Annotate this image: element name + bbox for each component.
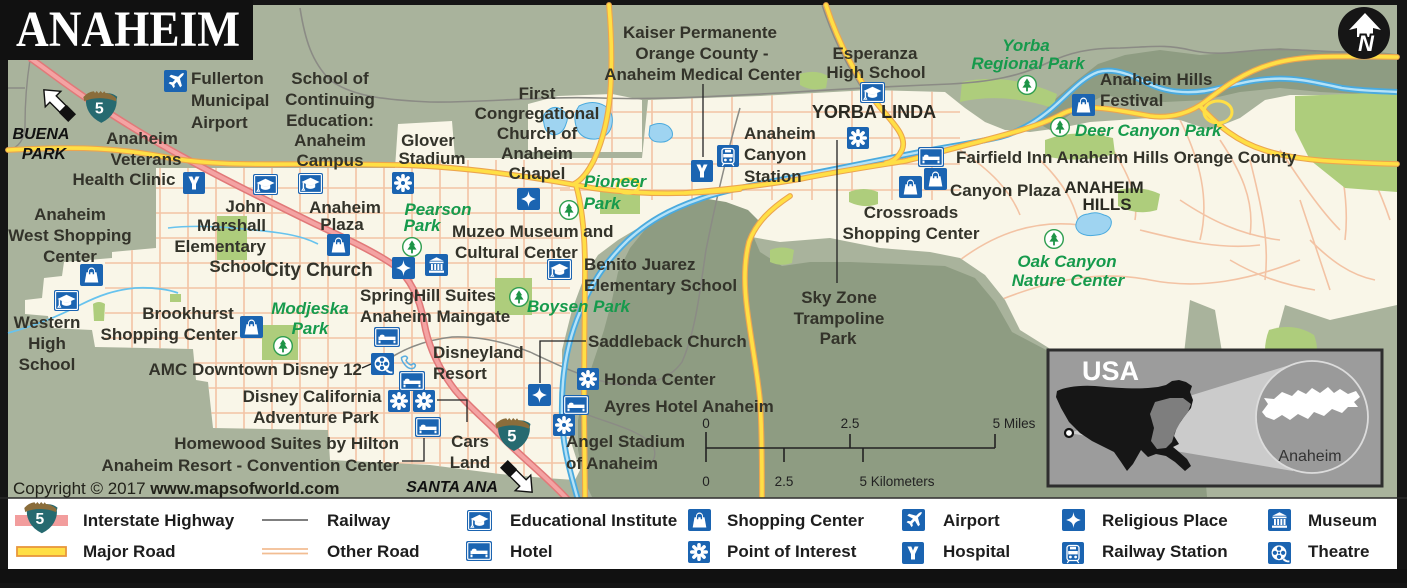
svg-text:Angel Stadium: Angel Stadium (566, 432, 685, 451)
svg-text:Glover: Glover (401, 131, 455, 150)
svg-text:Elementary School: Elementary School (584, 276, 737, 295)
svg-text:Yorba: Yorba (1002, 36, 1050, 55)
svg-text:Park: Park (584, 194, 622, 213)
svg-text:Airport: Airport (191, 113, 248, 132)
svg-text:Brookhurst: Brookhurst (142, 304, 234, 323)
svg-text:Land: Land (450, 453, 491, 472)
svg-text:PARK: PARK (22, 146, 68, 163)
svg-text:Boysen Park: Boysen Park (527, 297, 632, 316)
svg-text:Oak Canyon: Oak Canyon (1017, 252, 1116, 271)
svg-text:Fullerton: Fullerton (191, 69, 264, 88)
svg-text:2.5: 2.5 (775, 474, 794, 489)
svg-text:Orange County -: Orange County - (635, 44, 768, 63)
svg-text:Anaheim: Anaheim (744, 124, 816, 143)
svg-text:Interstate Highway: Interstate Highway (83, 511, 235, 530)
svg-text:Crossroads: Crossroads (864, 203, 958, 222)
svg-text:Pioneer: Pioneer (584, 172, 648, 191)
svg-text:Center: Center (43, 247, 97, 266)
svg-text:Railway Station: Railway Station (1102, 542, 1228, 561)
svg-text:2.5: 2.5 (841, 416, 860, 431)
svg-text:Other Road: Other Road (327, 542, 420, 561)
svg-text:West Shopping: West Shopping (8, 226, 131, 245)
svg-text:Theatre: Theatre (1308, 542, 1369, 561)
svg-text:Educational Institute: Educational Institute (510, 511, 677, 530)
svg-text:School of: School of (291, 69, 369, 88)
svg-text:Regional Park: Regional Park (971, 54, 1086, 73)
svg-text:Airport: Airport (943, 511, 1000, 530)
svg-text:Trampoline: Trampoline (794, 309, 885, 328)
svg-text:Western: Western (14, 313, 81, 332)
svg-text:City Church: City Church (265, 260, 373, 281)
svg-text:Anaheim: Anaheim (34, 205, 106, 224)
svg-text:5: 5 (507, 427, 516, 445)
svg-text:Homewood Suites by Hilton: Homewood Suites by Hilton (174, 434, 399, 453)
svg-text:Marshall: Marshall (197, 216, 266, 235)
svg-text:Disney California: Disney California (243, 387, 382, 406)
svg-text:Park: Park (404, 216, 442, 235)
svg-text:5: 5 (36, 511, 45, 528)
svg-text:Municipal: Municipal (191, 91, 269, 110)
svg-text:Plaza: Plaza (320, 215, 364, 234)
svg-text:BUENA: BUENA (13, 126, 70, 143)
svg-text:Anaheim Maingate: Anaheim Maingate (360, 307, 510, 326)
svg-text:Station: Station (744, 167, 802, 186)
svg-text:Chapel: Chapel (509, 164, 566, 183)
svg-text:Veterans: Veterans (111, 150, 182, 169)
svg-text:Anaheim: Anaheim (1278, 448, 1341, 465)
svg-text:School: School (209, 257, 266, 276)
svg-text:SANTA ANA: SANTA ANA (406, 479, 498, 496)
svg-text:5 Miles: 5 Miles (993, 416, 1036, 431)
svg-text:Continuing: Continuing (285, 90, 375, 109)
svg-text:Copyright © 2017 www.mapsofwor: Copyright © 2017 www.mapsofworld.com (13, 479, 340, 498)
svg-text:Hotel: Hotel (510, 542, 553, 561)
svg-text:Cars: Cars (451, 432, 489, 451)
svg-text:Museum: Museum (1308, 511, 1377, 530)
svg-text:First: First (519, 84, 556, 103)
svg-text:Shopping Center: Shopping Center (843, 224, 980, 243)
svg-text:Cultural Center: Cultural Center (455, 243, 578, 262)
svg-text:Esperanza: Esperanza (832, 44, 918, 63)
svg-text:YORBA LINDA: YORBA LINDA (812, 102, 936, 122)
svg-text:Modjeska: Modjeska (271, 299, 348, 318)
svg-text:Religious Place: Religious Place (1102, 511, 1228, 530)
svg-text:Church of: Church of (497, 124, 578, 143)
svg-text:5: 5 (95, 100, 104, 117)
svg-text:Anaheim Hills: Anaheim Hills (1100, 70, 1212, 89)
svg-text:Congregational: Congregational (475, 104, 600, 123)
svg-text:Honda Center: Honda Center (604, 370, 716, 389)
svg-text:Elementary: Elementary (174, 237, 266, 256)
svg-text:SpringHill Suites: SpringHill Suites (360, 286, 496, 305)
svg-text:Anaheim: Anaheim (501, 144, 573, 163)
svg-text:Adventure Park: Adventure Park (253, 408, 379, 427)
svg-text:AMC Downtown Disney 12: AMC Downtown Disney 12 (149, 360, 362, 379)
svg-text:Park: Park (820, 329, 857, 348)
svg-text:Point of Interest: Point of Interest (727, 542, 857, 561)
svg-text:Campus: Campus (296, 151, 363, 170)
svg-text:Muzeo Museum and: Muzeo Museum and (452, 222, 614, 241)
svg-text:Health Clinic: Health Clinic (73, 170, 176, 189)
svg-text:Shopping Center: Shopping Center (727, 511, 864, 530)
svg-text:Anaheim: Anaheim (294, 131, 366, 150)
svg-text:School: School (19, 355, 76, 374)
svg-text:HILLS: HILLS (1082, 195, 1131, 214)
svg-text:Anaheim: Anaheim (106, 129, 178, 148)
svg-text:Ayres Hotel Anaheim: Ayres Hotel Anaheim (604, 397, 774, 416)
svg-text:Park: Park (292, 319, 330, 338)
svg-text:Canyon: Canyon (744, 145, 806, 164)
svg-text:High: High (28, 334, 66, 353)
svg-text:ANAHEIM: ANAHEIM (16, 2, 240, 58)
svg-text:0: 0 (702, 416, 710, 431)
svg-text:USA: USA (1082, 356, 1139, 386)
svg-text:Anaheim Medical Center: Anaheim Medical Center (604, 65, 802, 84)
svg-text:Nature Center: Nature Center (1012, 271, 1126, 290)
svg-text:Resort: Resort (433, 364, 487, 383)
svg-text:High School: High School (826, 63, 925, 82)
svg-text:Hospital: Hospital (943, 542, 1010, 561)
svg-text:Education:: Education: (286, 111, 374, 130)
svg-text:Shopping Center: Shopping Center (101, 325, 238, 344)
svg-text:Kaiser Permanente: Kaiser Permanente (623, 23, 777, 42)
svg-text:Major Road: Major Road (83, 542, 176, 561)
svg-text:Benito Juarez: Benito Juarez (584, 255, 695, 274)
svg-text:Saddleback Church: Saddleback Church (588, 332, 747, 351)
svg-text:0: 0 (702, 474, 710, 489)
svg-text:of Anaheim: of Anaheim (566, 454, 658, 473)
svg-text:N: N (1358, 31, 1375, 56)
svg-text:Stadium: Stadium (398, 149, 465, 168)
svg-text:Canyon Plaza: Canyon Plaza (950, 181, 1061, 200)
svg-text:Anaheim Resort - Convention Ce: Anaheim Resort - Convention Center (101, 456, 399, 475)
svg-text:Railway: Railway (327, 511, 391, 530)
svg-text:Sky Zone: Sky Zone (801, 288, 877, 307)
svg-text:5 Kilometers: 5 Kilometers (859, 474, 934, 489)
svg-text:Deer Canyon Park: Deer Canyon Park (1075, 121, 1223, 140)
svg-text:Fairfield Inn Anaheim Hills Or: Fairfield Inn Anaheim Hills Orange Count… (956, 148, 1297, 167)
svg-text:Festival: Festival (1100, 91, 1163, 110)
svg-text:Disneyland: Disneyland (433, 343, 524, 362)
svg-text:John: John (225, 197, 266, 216)
